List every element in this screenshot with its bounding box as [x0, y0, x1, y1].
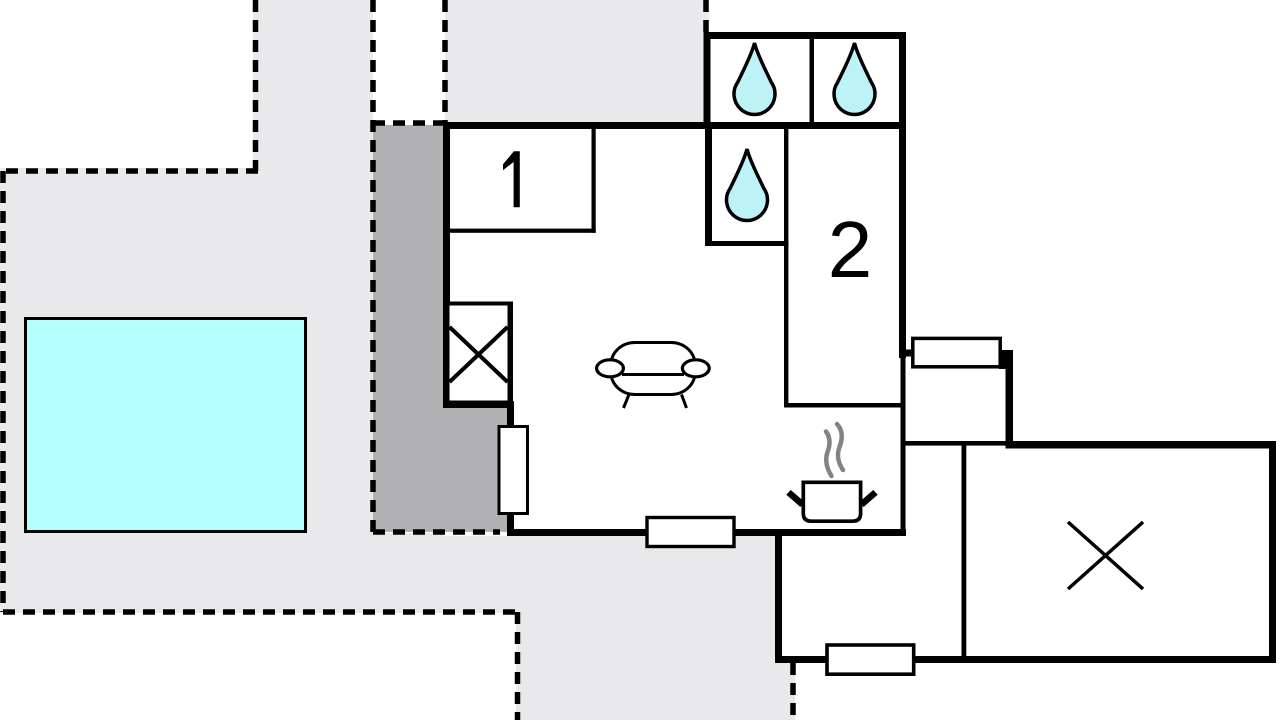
svg-text:2: 2	[828, 205, 873, 294]
